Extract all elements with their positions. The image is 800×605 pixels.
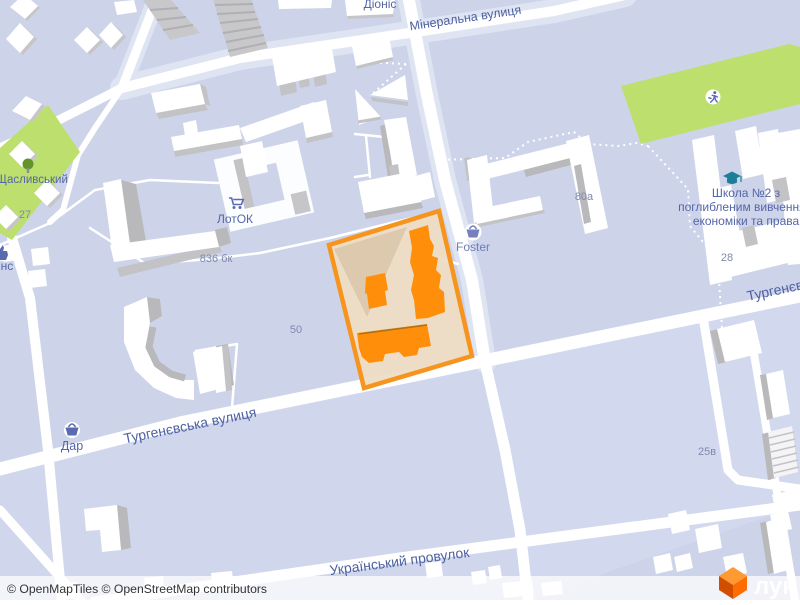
svg-text:поглибленим вивченням: поглибленим вивченням bbox=[678, 200, 800, 214]
svg-text:50: 50 bbox=[290, 324, 302, 336]
svg-text:Діоніс: Діоніс bbox=[364, 0, 397, 11]
svg-text:28: 28 bbox=[721, 252, 733, 264]
svg-text:80а: 80а bbox=[575, 191, 594, 203]
svg-text:економіки та права: економіки та права bbox=[693, 214, 800, 228]
svg-text:836 бк: 836 бк bbox=[200, 253, 233, 265]
svg-text:нс: нс bbox=[1, 259, 14, 273]
svg-text:Щасливський: Щасливський bbox=[0, 174, 68, 186]
svg-text:Foster: Foster bbox=[456, 240, 490, 254]
svg-text:25в: 25в bbox=[698, 446, 716, 458]
svg-text:ЛотОК: ЛотОК bbox=[217, 212, 253, 226]
svg-text:© OpenMapTiles © OpenStreetMap: © OpenMapTiles © OpenStreetMap contribut… bbox=[7, 582, 267, 596]
svg-text:лун: лун bbox=[754, 573, 797, 600]
svg-text:Дар: Дар bbox=[61, 439, 83, 453]
svg-text:27: 27 bbox=[19, 209, 31, 221]
svg-text:Школа №2 з: Школа №2 з bbox=[712, 186, 781, 200]
